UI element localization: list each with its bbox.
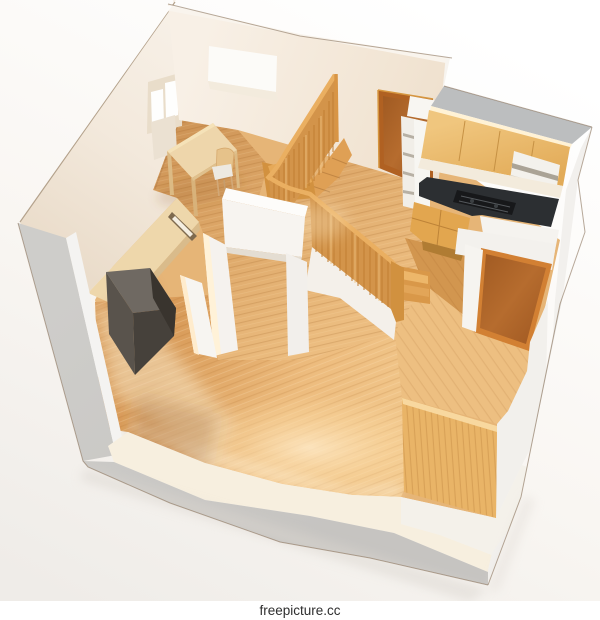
svg-text:freepicture.cc: freepicture.cc (259, 603, 340, 618)
